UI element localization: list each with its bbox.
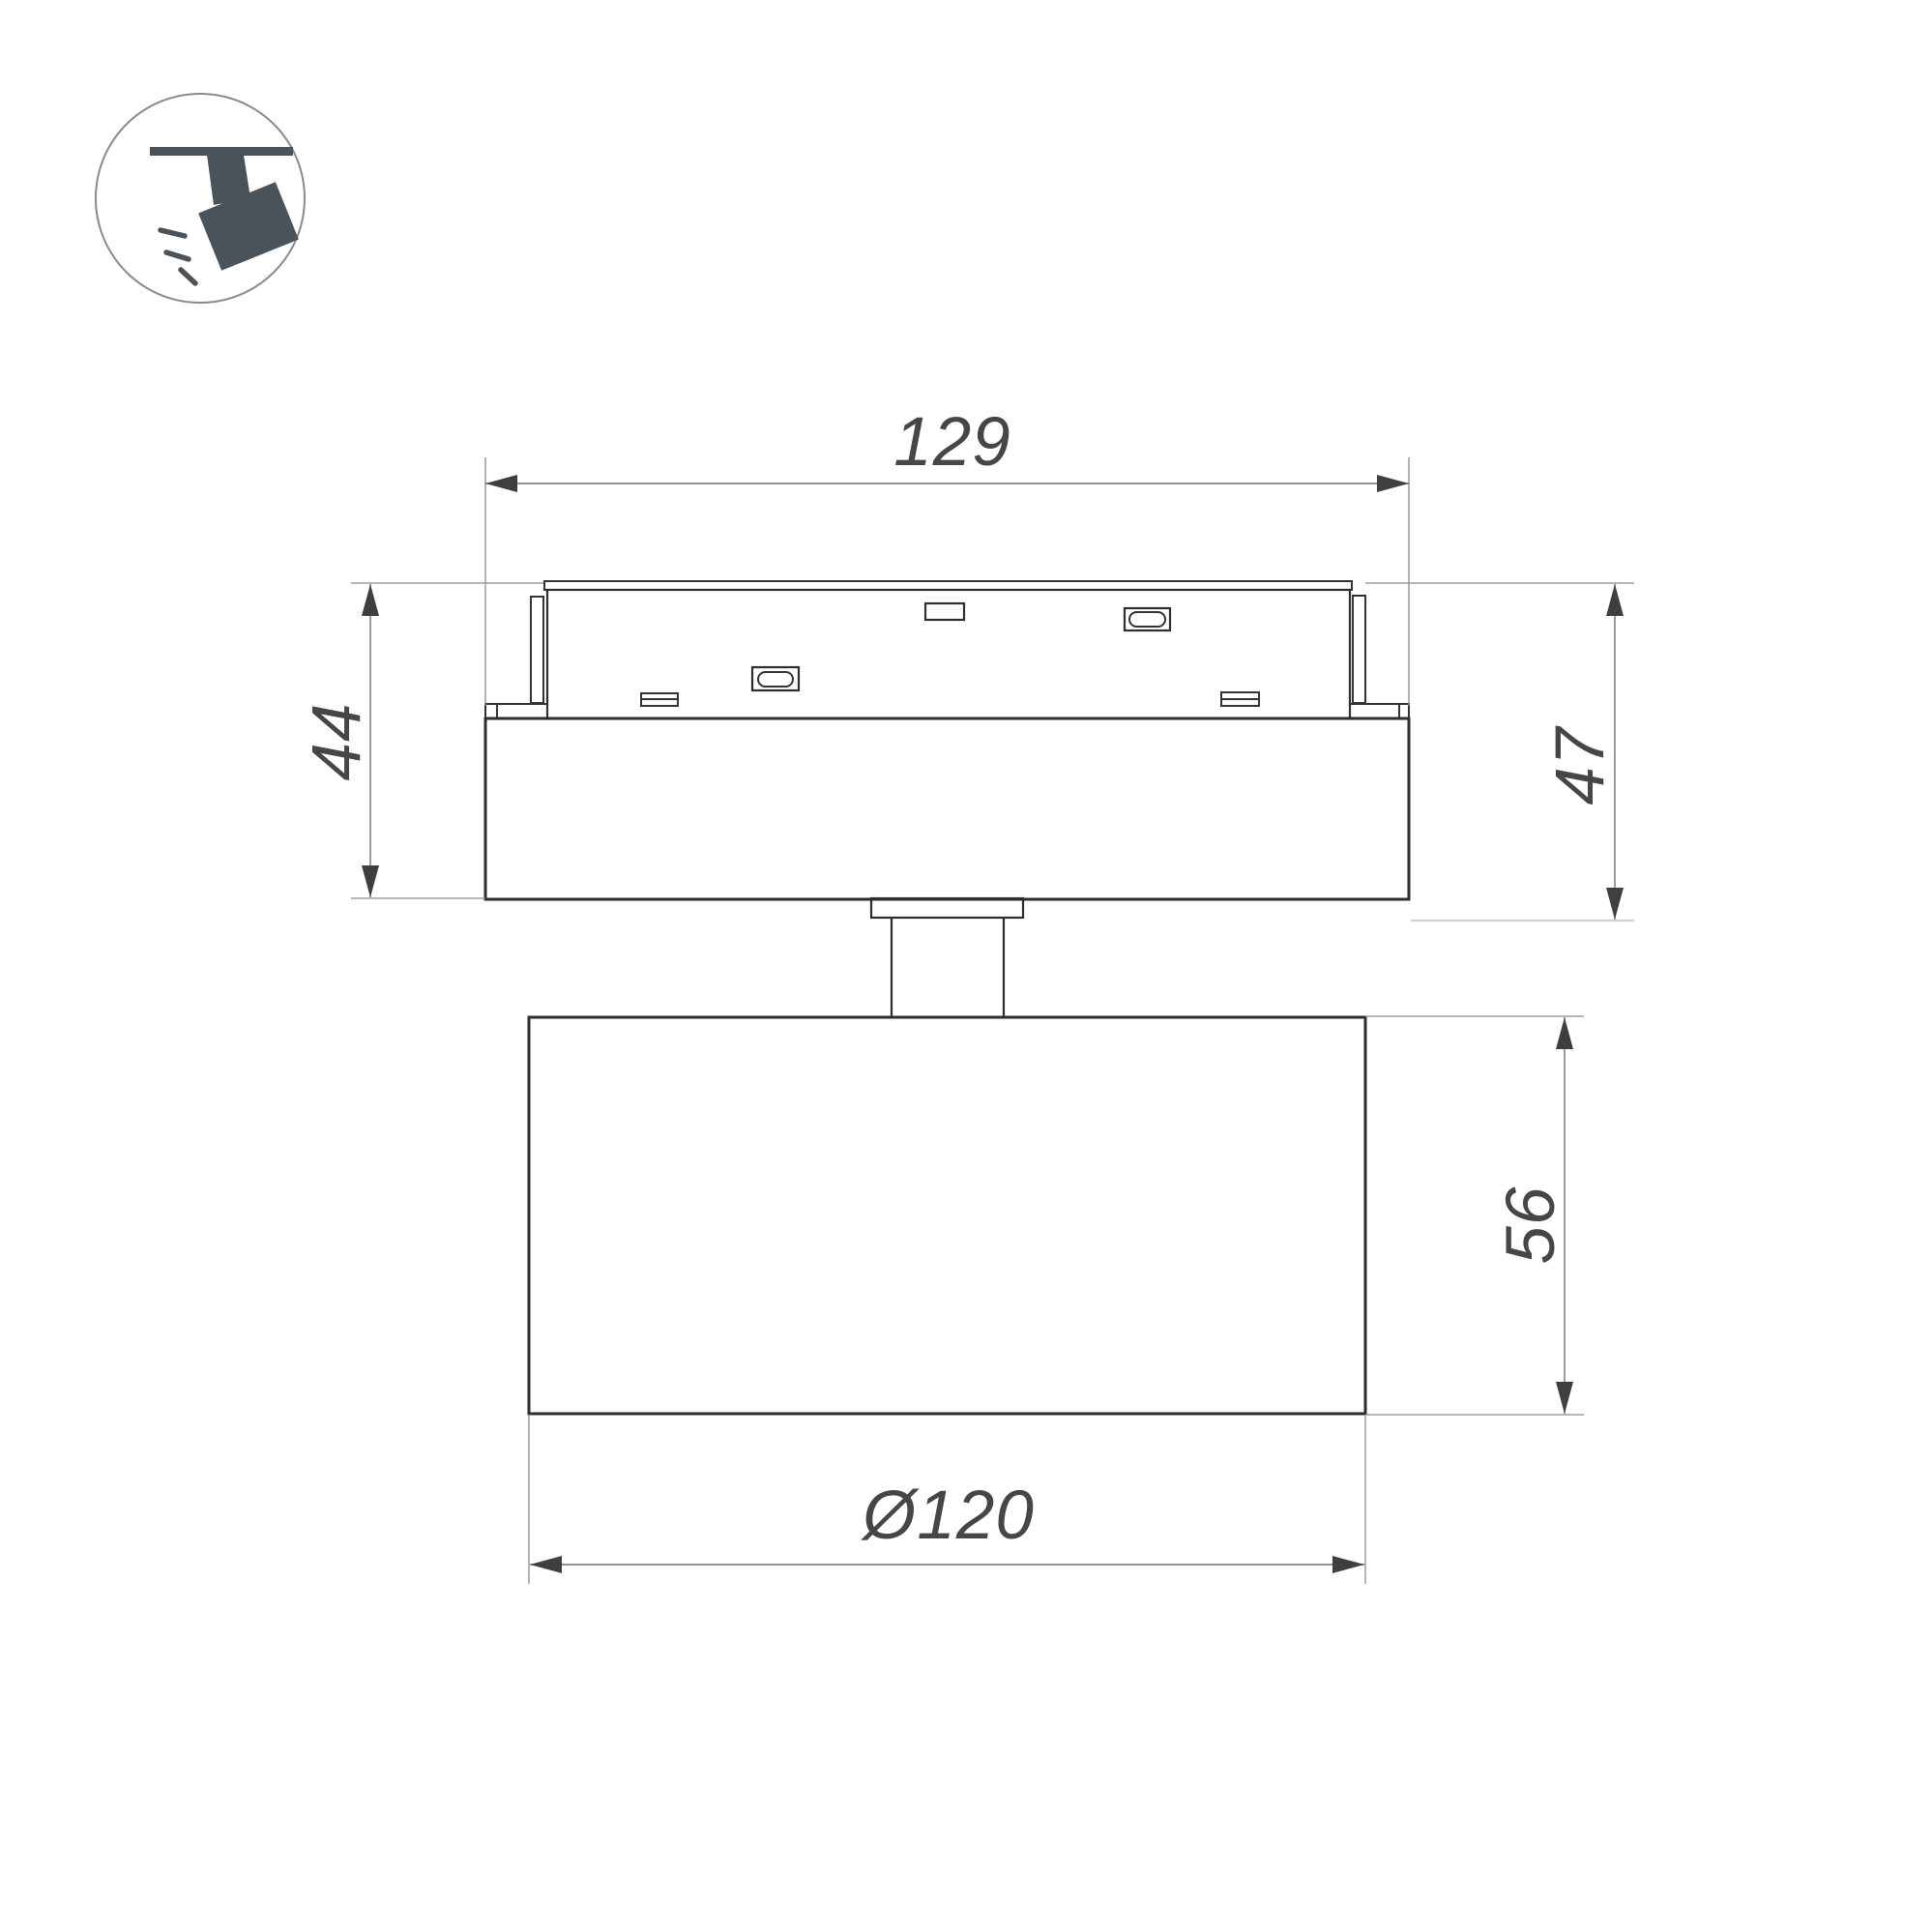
adapter-top-plate [544, 581, 1352, 590]
arrow-down [1606, 888, 1624, 920]
arrow-right [1377, 475, 1409, 492]
adapter-tab-right [1353, 596, 1365, 703]
dimension-head-diameter: Ø120 [529, 1416, 1365, 1584]
adapter-tab-left [531, 597, 543, 703]
arrow-down [1556, 1382, 1573, 1414]
lamp-head [529, 1017, 1365, 1414]
arrow-up [1556, 1017, 1573, 1049]
arrow-up [1606, 584, 1624, 616]
technical-drawing-page: 129 44 47 56 Ø120 [0, 0, 1932, 1932]
icon-track-bar [150, 147, 293, 156]
adapter-button-right-inner [1129, 612, 1165, 627]
arrow-down [362, 865, 379, 897]
dimension-label-129: 129 [893, 404, 1010, 481]
arrow-left [485, 475, 517, 492]
track-adapter [485, 581, 1409, 718]
arrow-up [362, 584, 379, 616]
dimension-label-56: 56 [1493, 1186, 1569, 1265]
adapter-button-left-inner [758, 672, 793, 687]
driver-housing [485, 718, 1409, 899]
drawing-svg: 129 44 47 56 Ø120 [0, 0, 1932, 1932]
dimension-head-height: 56 [1365, 1016, 1584, 1415]
adapter-step-left [485, 704, 547, 718]
dimension-label-d120: Ø120 [861, 1478, 1035, 1554]
dimension-base-height-left: 44 [299, 583, 543, 898]
dimension-label-47: 47 [1542, 725, 1619, 805]
adapter-slot-top [925, 603, 964, 620]
dimension-track-width: 129 [485, 404, 1409, 706]
arrow-left [530, 1556, 562, 1573]
dimension-label-44: 44 [299, 703, 375, 781]
track-spotlight-icon [96, 94, 305, 303]
dimension-base-height-right: 47 [1365, 583, 1634, 921]
arrow-right [1332, 1556, 1364, 1573]
pivot-collar [871, 898, 1023, 918]
